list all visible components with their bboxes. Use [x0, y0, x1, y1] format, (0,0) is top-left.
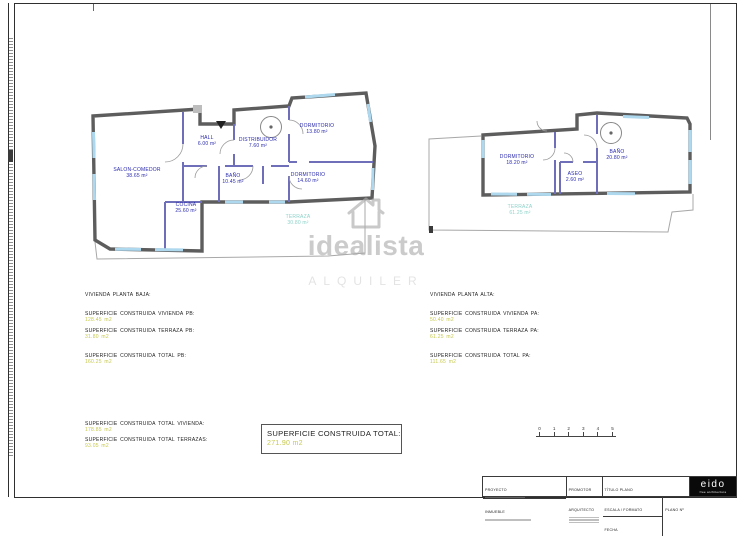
room-label-distribuidor: DISTRIBUIDOR7.60 m²	[239, 138, 277, 149]
proyecto-label: PROYECTO	[485, 488, 507, 492]
cell-plano-n: PLANO Nº	[663, 497, 689, 536]
plano-n-label: PLANO Nº	[665, 508, 684, 512]
cell-titulo-plano: TÍTULO PLANO	[603, 477, 690, 497]
spiral-stair-center	[269, 125, 272, 128]
scale-line	[536, 436, 616, 437]
illegible-text	[569, 519, 599, 520]
architect-logo: eido free architecture	[690, 477, 736, 496]
cell-proyecto: PROYECTO	[483, 477, 566, 499]
terrace-corner-mark	[429, 226, 433, 233]
scale-tick: 1	[551, 426, 558, 436]
room-label-dormitorio-pa: DORMITORIO18.20 m²	[500, 155, 534, 166]
total-value: 93.05 m2	[85, 443, 109, 449]
total-value: 178.85 m2	[85, 427, 112, 433]
watermark-stamp: ALQUILER	[308, 274, 423, 288]
scale-bar: 0 1 2 3 4 5	[536, 426, 616, 440]
grand-total-box: SUPERFICIE CONSTRUIDA TOTAL: 271.90 m2	[261, 424, 402, 454]
cell-promotor: PROMOTOR	[567, 477, 602, 497]
title-block-col-titulo: TÍTULO PLANO ESCALA / FORMATO FECHA PLAN…	[603, 477, 691, 496]
line-value: 128.45 m2	[85, 317, 112, 323]
cell-escala: ESCALA / FORMATO	[603, 497, 663, 517]
room-label-bano-pa: BAÑO20.80 m²	[606, 150, 627, 161]
plan-planta-alta	[425, 100, 703, 240]
fecha-label: FECHA	[605, 528, 618, 532]
illegible-text	[569, 522, 599, 523]
illegible-text	[485, 497, 525, 498]
spiral-stair-center	[609, 131, 612, 134]
logo-wordmark: eido	[701, 480, 726, 490]
scale-tick: 2	[565, 426, 572, 436]
idealista-house-icon	[344, 194, 388, 230]
grand-total-label: SUPERFICIE CONSTRUIDA TOTAL:	[267, 429, 401, 438]
room-label-hall: HALL6.00 m²	[198, 136, 216, 147]
room-label-dormitorio-2: DORMITORIO14.60 m²	[291, 173, 325, 184]
scale-tick: 5	[609, 426, 616, 436]
room-label-terraza-pb: TERRAZA30.80 m²	[286, 215, 311, 226]
room-label-dormitorio-1: DORMITORIO13.80 m²	[300, 124, 334, 135]
title-block-col-proyecto: PROYECTO INMUEBLE	[483, 477, 567, 496]
cell-inmueble: INMUEBLE	[483, 499, 566, 520]
wall-block	[193, 105, 202, 113]
line-value: 111.65 m2	[430, 359, 456, 365]
heading-planta-alta: VIVIENDA PLANTA ALTA:	[430, 292, 495, 298]
room-label-terraza-pa: TERRAZA61.25 m²	[508, 205, 533, 216]
idealista-watermark: idealista	[308, 230, 425, 262]
scale-ticks: 0 1 2 3 4 5	[536, 426, 616, 436]
illegible-text	[485, 519, 531, 520]
title-block-col-promotor: PROMOTOR ARQUITECTO	[567, 477, 603, 496]
line-value: 61.25 m2	[430, 334, 454, 340]
margin-microtext	[9, 38, 13, 456]
scale-tick: 4	[594, 426, 601, 436]
room-label-bano: BAÑO10.45 m²	[222, 174, 243, 185]
room-label-salon: SALON-COMEDOR38.65 m²	[113, 168, 160, 179]
logo-subtext: free architecture	[700, 490, 727, 494]
fold-mark-line	[710, 4, 711, 140]
cell-escala-fecha-plano: ESCALA / FORMATO FECHA PLANO Nº	[603, 497, 690, 536]
line-value: 50.40 m2	[430, 317, 454, 323]
room-label-aseo: ASEO2.60 m²	[566, 172, 584, 183]
scale-tick: 0	[536, 426, 543, 436]
floorplan-sheet: { "watermark": { "brand": "idealista", "…	[0, 0, 750, 500]
arquitecto-label: ARQUITECTO	[569, 508, 595, 512]
cell-fecha: FECHA	[603, 517, 663, 536]
escala-label: ESCALA / FORMATO	[605, 508, 643, 512]
promotor-label: PROMOTOR	[569, 488, 592, 492]
escala-fecha-stack: ESCALA / FORMATO FECHA	[603, 497, 664, 536]
grand-total-value: 271.90 m2	[267, 440, 303, 447]
title-block: PROYECTO INMUEBLE PROMOTOR ARQUITECTO TÍ…	[482, 476, 737, 497]
line-value: 31.80 m2	[85, 334, 109, 340]
cell-arquitecto: ARQUITECTO	[567, 497, 602, 523]
room-label-cocina: COCINA25.60 m²	[175, 203, 196, 214]
line-value: 160.25 m2	[85, 359, 112, 365]
heading-planta-baja: VIVIENDA PLANTA BAJA:	[85, 292, 151, 298]
inmueble-label: INMUEBLE	[485, 510, 505, 514]
scale-tick: 3	[580, 426, 587, 436]
titulo-plano-label: TÍTULO PLANO	[605, 488, 633, 492]
margin-mark	[8, 150, 13, 162]
illegible-text	[569, 517, 599, 518]
fold-mark-tick	[93, 4, 94, 11]
